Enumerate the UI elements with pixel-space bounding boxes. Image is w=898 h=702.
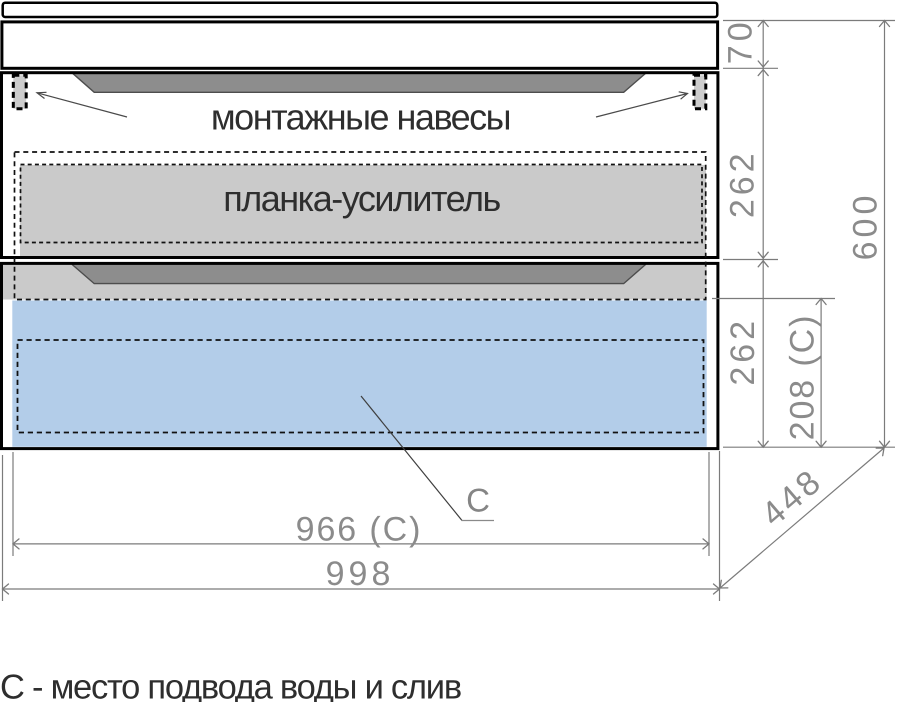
svg-text:монтажные навесы: монтажные навесы	[211, 96, 510, 137]
svg-text:C: C	[466, 481, 490, 518]
svg-text:262: 262	[724, 149, 762, 218]
svg-text:планка-усилитель: планка-усилитель	[223, 178, 500, 219]
svg-text:С - место подвода воды и слив: С - место подвода воды и слив	[0, 668, 461, 702]
svg-text:600: 600	[847, 192, 885, 261]
svg-text:70: 70	[722, 18, 760, 64]
svg-text:208 (С): 208 (С)	[784, 314, 822, 441]
svg-text:966 (С): 966 (С)	[296, 511, 423, 549]
svg-text:998: 998	[326, 555, 395, 593]
svg-text:262: 262	[724, 317, 762, 386]
